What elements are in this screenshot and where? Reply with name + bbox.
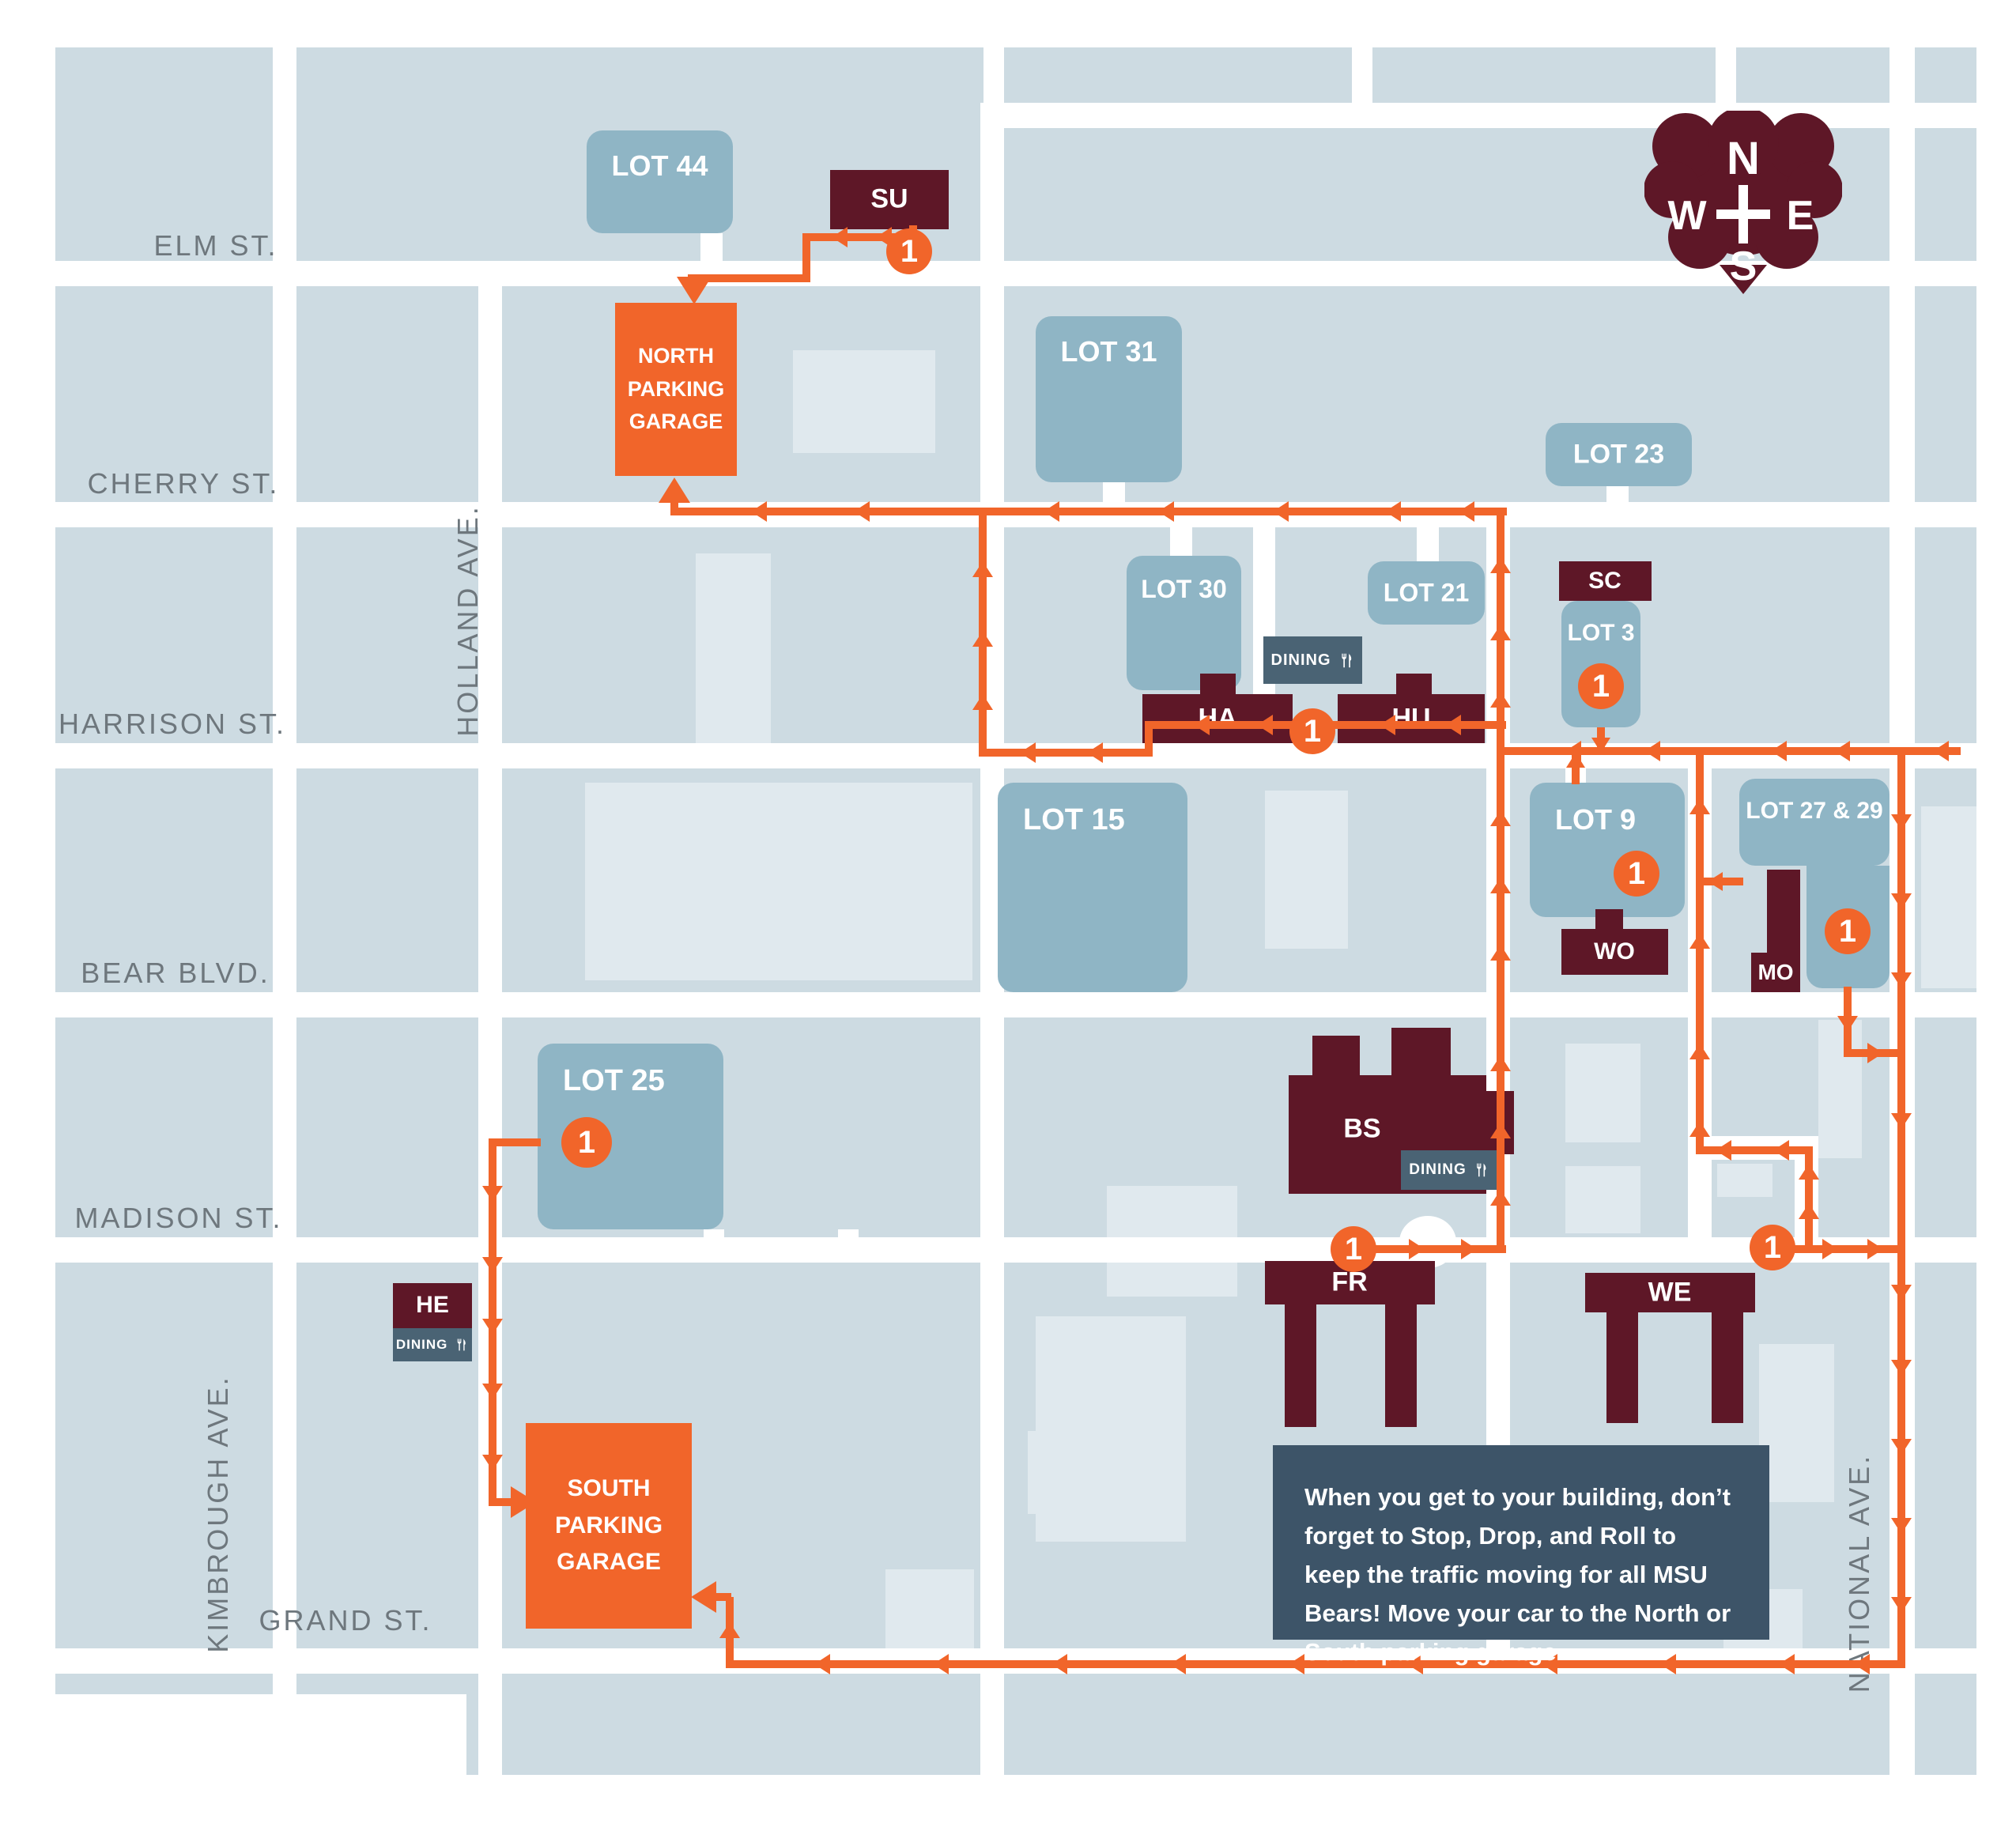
route-arrow-l <box>1273 501 1289 522</box>
note-box: When you get to your building, don’t for… <box>1273 1445 1769 1640</box>
building-we <box>1606 1312 1638 1423</box>
route-arrow-l <box>1773 1140 1789 1161</box>
route-arrow-d <box>1891 1439 1912 1455</box>
route-segment <box>1805 1146 1813 1251</box>
building-hu <box>1396 674 1432 696</box>
garage-label: SOUTH <box>568 1470 651 1508</box>
building-footprint <box>1921 806 1976 988</box>
compass-n: N <box>1727 133 1760 184</box>
street-top-stub-2 <box>1352 47 1372 111</box>
lot-label: LOT 31 <box>1060 335 1157 368</box>
route-marker: 1 <box>1578 663 1624 709</box>
route-arrow-u <box>1689 1121 1710 1137</box>
lot-lot-31: LOT 31 <box>1036 316 1182 482</box>
dining-label: DINING <box>1409 1161 1467 1179</box>
route-arrow-d <box>1891 1597 1912 1613</box>
route-arrow-d <box>482 1455 503 1470</box>
route-arrow-u <box>972 631 993 647</box>
lot-lot-23: LOT 23 <box>1546 423 1692 486</box>
lot-label: LOT 25 <box>563 1064 665 1098</box>
building-label: WE <box>1648 1278 1692 1308</box>
dining-badge: DINING <box>393 1328 472 1361</box>
route-arrow-l <box>1289 1654 1304 1674</box>
lot-lot-21: LOT 21 <box>1368 561 1485 625</box>
building-label: MO <box>1757 960 1793 985</box>
route-arrow-u <box>972 561 993 577</box>
north-parking-garage: NORTHPARKINGGARAGE <box>615 303 737 476</box>
lot-label: LOT 23 <box>1573 440 1664 470</box>
route-marker-label: 1 <box>1839 914 1856 949</box>
route-marker: 1 <box>1750 1225 1795 1270</box>
route-arrow-l <box>1257 715 1273 735</box>
route-marker: 1 <box>561 1117 612 1168</box>
building-footprint <box>1565 1044 1640 1142</box>
street-label-bear-blvd: BEAR BLVD. <box>81 957 270 990</box>
route-arrow-u <box>1490 945 1511 961</box>
building-label: SU <box>870 184 908 215</box>
route-arrow-d <box>1891 1113 1912 1129</box>
route-arrow-l <box>1380 715 1395 735</box>
route-marker: 1 <box>1825 908 1871 954</box>
compass-bear-icon: N W E S <box>1644 111 1842 296</box>
route-arrow-l <box>1779 1654 1795 1674</box>
compass-e: E <box>1787 193 1814 239</box>
route-arrow-u <box>1490 878 1511 893</box>
compass-w: W <box>1667 193 1707 239</box>
street-stem <box>1103 482 1125 504</box>
street-stem <box>1170 526 1192 557</box>
dining-label: DINING <box>396 1337 448 1353</box>
route-arrow-u <box>1799 1203 1819 1219</box>
route-arrow-d <box>1891 893 1912 909</box>
route-arrow-d <box>1891 1285 1912 1301</box>
building-footprint <box>696 553 771 743</box>
route-arrow-u <box>1490 625 1511 640</box>
garage-label: PARKING <box>555 1508 663 1545</box>
building-footprint <box>1565 1166 1640 1233</box>
street-top-stub-1 <box>983 47 1004 111</box>
route-arrow-l <box>1459 501 1474 522</box>
route-arrow-l <box>1771 741 1787 761</box>
street-label-grand-st: GRAND ST. <box>259 1604 432 1637</box>
route-arrow-d <box>1891 1518 1912 1534</box>
south-parking-garage: SOUTHPARKINGGARAGE <box>526 1423 692 1629</box>
route-arrow-l <box>1644 741 1660 761</box>
building-we <box>1712 1312 1743 1423</box>
route-arrow-l <box>1170 1654 1186 1674</box>
street-stem <box>1417 526 1439 563</box>
route-arrow-d <box>1837 1016 1858 1032</box>
map-edge-cut <box>55 1694 466 1775</box>
lot-label: LOT 21 <box>1384 579 1469 608</box>
building-label: WO <box>1594 938 1635 965</box>
campus-map-page: { "map": { "colors": { "base": "#cddbe2"… <box>0 0 2016 1831</box>
route-segment <box>1696 1146 1813 1154</box>
building-footprint <box>1717 1164 1772 1197</box>
route-arrow-l <box>1044 501 1059 522</box>
route-arrow-d <box>1591 738 1610 753</box>
route-arrow-r <box>1867 1043 1883 1063</box>
route-arrow-l <box>1933 741 1949 761</box>
route-arrow-u <box>1490 810 1511 826</box>
building-footprint <box>885 1569 974 1648</box>
route-marker-label: 1 <box>1592 669 1610 704</box>
route-arrow-u <box>1490 692 1511 708</box>
street-label-holland-ave: HOLLAND AVE. <box>451 504 485 736</box>
route-arrow-u <box>1490 557 1511 573</box>
route-marker-label: 1 <box>578 1125 595 1161</box>
building-bs <box>1391 1028 1451 1075</box>
street-stem <box>700 233 723 263</box>
building-footprint <box>1759 1344 1834 1502</box>
route-arrow-u <box>1689 798 1710 814</box>
route-marker: 1 <box>1331 1226 1376 1272</box>
street-label-cherry-st: CHERRY ST. <box>88 467 280 500</box>
dining-label: DINING <box>1271 651 1331 670</box>
route-arrow-l <box>1445 715 1461 735</box>
garage-label: GARAGE <box>557 1544 661 1581</box>
building-label: BS <box>1343 1114 1380 1145</box>
route-segment <box>670 508 1507 515</box>
route-marker-label: 1 <box>900 234 918 270</box>
route-arrow-l <box>691 1581 716 1613</box>
route-arrow-u <box>1689 933 1710 949</box>
street-stem <box>704 1229 724 1239</box>
street-v-left <box>273 47 296 1775</box>
building-fr <box>1385 1304 1417 1427</box>
lot-label: LOT 9 <box>1555 803 1636 836</box>
route-marker: 1 <box>1614 851 1659 897</box>
route-arrow-d <box>482 1186 503 1202</box>
street-stem <box>838 1229 859 1239</box>
street-label-kimbrough-ave: KIMBROUGH AVE. <box>202 1375 235 1652</box>
route-arrow-u <box>1490 1190 1511 1206</box>
lot-label: LOT 44 <box>611 149 708 183</box>
route-arrow-u <box>719 1622 740 1638</box>
lot-lot-44: LOT 44 <box>587 130 733 233</box>
route-marker: 1 <box>886 228 932 274</box>
route-marker-label: 1 <box>1764 1230 1781 1266</box>
route-arrow-l <box>832 227 848 247</box>
building-footprint <box>1818 1020 1862 1158</box>
route-arrow-d <box>482 1257 503 1273</box>
route-arrow-l <box>1194 715 1210 735</box>
compass-s: S <box>1730 244 1757 289</box>
fork-knife-icon <box>455 1338 469 1352</box>
garage-label: GARAGE <box>629 406 723 439</box>
route-marker-label: 1 <box>1304 714 1321 749</box>
route-arrow-l <box>1716 1140 1731 1161</box>
route-arrow-l <box>854 501 870 522</box>
fork-knife-icon <box>1338 652 1355 669</box>
building-ha <box>1200 674 1236 696</box>
route-arrow-u <box>1490 1123 1511 1138</box>
route-marker: 1 <box>1289 708 1335 754</box>
route-arrow-r <box>1409 1239 1425 1259</box>
route-arrow-l <box>1565 741 1581 761</box>
street-label-madison-st: MADISON ST. <box>74 1202 282 1235</box>
route-arrow-l <box>1020 742 1036 763</box>
street-stem <box>1606 486 1629 504</box>
garage-label: PARKING <box>628 373 725 406</box>
route-arrow-u <box>1490 1055 1511 1071</box>
route-arrow-d <box>1891 814 1912 830</box>
lot-label: LOT 27 & 29 <box>1746 798 1882 825</box>
building-label: SC <box>1588 568 1621 595</box>
route-arrow-l <box>1660 1654 1676 1674</box>
route-arrow-d <box>1891 1360 1912 1376</box>
dining-badge: DINING <box>1263 636 1362 684</box>
route-arrow-r <box>1461 1239 1477 1259</box>
route-arrow-u <box>972 694 993 710</box>
lot-label: LOT 30 <box>1141 575 1226 604</box>
route-arrow-r <box>511 1486 536 1518</box>
building-bs <box>1312 1036 1360 1079</box>
route-arrow-d <box>677 277 712 304</box>
route-arrow-u <box>1689 1044 1710 1059</box>
garage-label: NORTH <box>638 340 714 373</box>
street-label-elm-st: ELM ST. <box>153 229 277 262</box>
fork-knife-icon <box>1474 1162 1489 1178</box>
street-holland <box>478 261 502 1775</box>
route-arrow-l <box>1854 1654 1870 1674</box>
route-arrow-u <box>659 478 690 503</box>
route-arrow-d <box>482 1384 503 1399</box>
lot-lot-15: LOT 15 <box>998 783 1187 992</box>
dining-badge: DINING <box>1401 1150 1497 1190</box>
route-arrow-l <box>1385 501 1401 522</box>
route-arrow-d <box>482 1319 503 1335</box>
building-footprint <box>793 350 935 453</box>
building-footprint <box>585 783 972 980</box>
route-arrow-l <box>933 1654 949 1674</box>
lot-lot-30: LOT 30 <box>1127 556 1241 690</box>
building-fr <box>1285 1304 1316 1427</box>
route-arrow-l <box>751 501 767 522</box>
street-top-stub-3 <box>1716 47 1736 111</box>
street-label-harrison-st: HARRISON ST. <box>59 708 286 741</box>
route-marker-label: 1 <box>1345 1232 1362 1267</box>
route-arrow-d <box>1891 972 1912 988</box>
building-wo <box>1595 909 1623 931</box>
route-arrow-l <box>814 1654 830 1674</box>
route-arrow-l <box>1708 872 1723 891</box>
lot-lot-27-29: LOT 27 & 29 <box>1739 779 1890 866</box>
lot-lot-9: LOT 9 <box>1530 783 1685 917</box>
compass-bear: N W E S <box>1644 111 1842 300</box>
route-segment <box>493 1138 541 1146</box>
route-arrow-l <box>1087 742 1103 763</box>
building-label: HU <box>1391 704 1430 734</box>
route-marker-label: 1 <box>1628 856 1645 892</box>
route-arrow-u <box>1799 1164 1819 1180</box>
note-text: When you get to your building, don’t for… <box>1304 1483 1731 1666</box>
building-footprint <box>1028 1431 1134 1514</box>
building-label: HE <box>416 1292 449 1319</box>
route-segment <box>979 749 1151 757</box>
route-arrow-r <box>1867 1239 1883 1259</box>
route-arrow-l <box>1158 501 1174 522</box>
building-footprint <box>1265 791 1348 949</box>
route-arrow-l <box>1051 1654 1067 1674</box>
route-arrow-l <box>1834 741 1850 761</box>
route-arrow-r <box>1822 1239 1838 1259</box>
lot-label: LOT 3 <box>1567 620 1634 647</box>
lot-label: LOT 15 <box>1023 803 1125 837</box>
